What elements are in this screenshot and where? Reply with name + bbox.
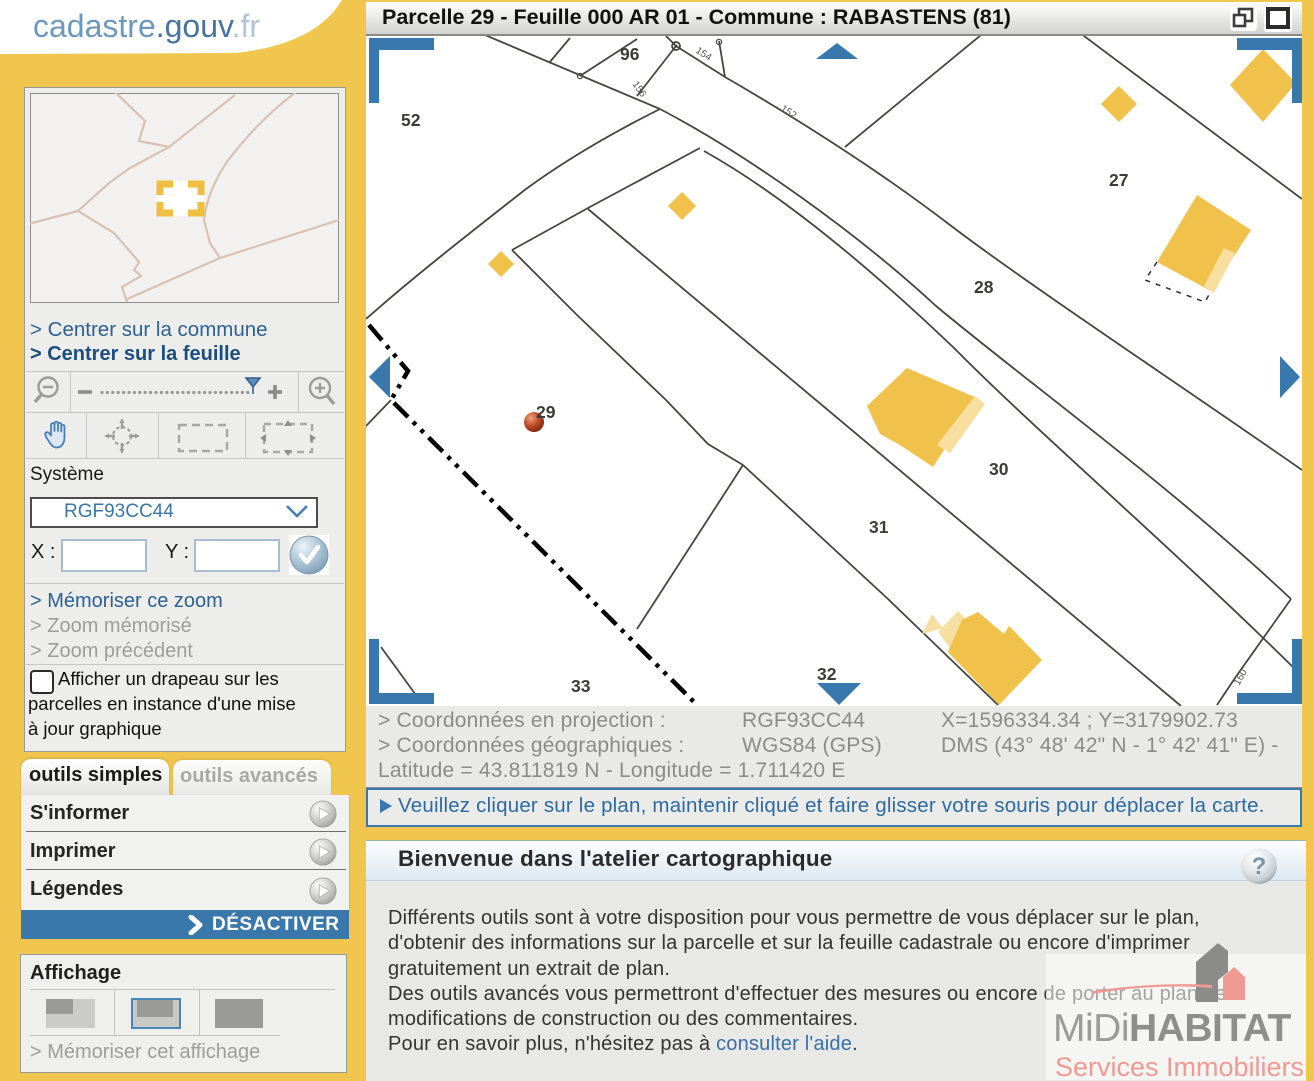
svg-text:MiDiHABITAT: MiDiHABITAT bbox=[1053, 1007, 1292, 1050]
svg-text:33: 33 bbox=[571, 676, 591, 696]
svg-text:28: 28 bbox=[974, 277, 994, 297]
svg-text:29: 29 bbox=[536, 402, 556, 422]
svg-text:96: 96 bbox=[620, 44, 640, 64]
svg-text:Services Immobiliers: Services Immobiliers bbox=[1055, 1052, 1304, 1080]
svg-text:52: 52 bbox=[401, 110, 421, 130]
svg-text:31: 31 bbox=[869, 517, 889, 537]
svg-text:?: ? bbox=[1252, 853, 1267, 880]
svg-text:32: 32 bbox=[817, 664, 837, 684]
svg-text:27: 27 bbox=[1109, 170, 1128, 190]
svg-text:30: 30 bbox=[989, 459, 1009, 479]
